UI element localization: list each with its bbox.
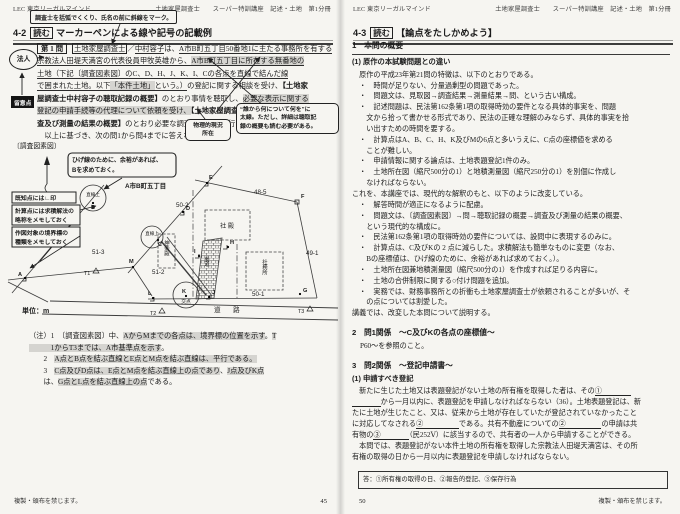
svg-text:L: L (148, 291, 152, 297)
svg-text:K: K (182, 289, 186, 295)
page-number-left: 45 (320, 498, 327, 505)
svg-text:E: E (209, 175, 213, 181)
parcel-51-3: 51-3 (92, 249, 105, 256)
header-brand: LEC 東京リーガルマインド (353, 4, 431, 13)
answer-box: 答：①所有権の取得の日、②報告的登記、③保存行為 (358, 471, 668, 489)
svg-text:I: I (194, 249, 196, 255)
heading-q1: 2 問1関係 ～C及びKの各点の座標値～ (352, 328, 670, 339)
section-number: 4-2 (13, 28, 26, 38)
page-right: LEC 東京リーガルマインド 土地家屋調査士 スーパー特訓講座 記述・土地 第1… (340, 0, 680, 514)
heading-q2: 3 問2関係 ～登記申請書～ (352, 361, 670, 372)
label-kagura-hall: 神楽殿 (163, 239, 170, 258)
approach-path-strip (196, 238, 222, 299)
svg-text:C: C (158, 242, 162, 248)
scanned-textbook-spread: LEC 東京リーガルマインド 土地家屋調査士 スーパー特訓講座 記述・土地 第1… (0, 0, 680, 514)
registration-text: 新たに生じた土地又は表題登記がない土地の所有権を取得した者は、その① から一月以… (352, 386, 670, 462)
memo-straight-line-c: 直線上 (145, 230, 159, 236)
unit-label: 単位：m (22, 306, 49, 315)
svg-text:略称をメモしておく: 略称をメモしておく (15, 216, 68, 224)
read-tag: 読む (370, 27, 393, 39)
section-title-text: 【論点をたしかめよう】 (396, 28, 497, 38)
annotation-callout-surveyor: 調査士を括弧でくくり、氏名の前に斜線をマーク。 (30, 10, 177, 24)
svg-text:F: F (301, 194, 305, 200)
label-approach-path: 参道 (203, 255, 210, 268)
svg-text:A: A (18, 272, 22, 278)
svg-text:既知点には∟印: 既知点には∟印 (15, 194, 56, 202)
svg-text:T3: T3 (298, 309, 304, 315)
svg-text:J: J (212, 290, 215, 296)
header-course: 土地家屋調査士 スーパー特訓講座 記述・土地 第1分冊 (495, 4, 671, 13)
svg-text:ひげ線のために、余裕があれば、: ひげ線のために、余裕があれば、 (72, 156, 162, 164)
label-road: 道 路 (214, 305, 243, 314)
notes-block: （注）1 〔調査図素図〕中、AからMまでの各点は、境界標の位置を示す。T 1から… (29, 331, 333, 389)
copyright-right: 複製・頒布を禁じます。 (599, 496, 666, 505)
header-course: 土地家屋調査士 スーパー特訓講座 記述・土地 第1分冊 (155, 4, 331, 13)
memo-straight-line-b: 直線上 (86, 191, 100, 197)
page-header: LEC 東京リーガルマインド 土地家屋調査士 スーパー特訓講座 記述・土地 第1… (353, 4, 671, 13)
q1-reference: P60～を参照のこと。 (360, 341, 670, 352)
svg-text:T1: T1 (84, 271, 90, 277)
heading-original-diff: (1) 原作の本試験問題との違い (352, 57, 670, 68)
margin-note-legal-person: 法人 (9, 49, 38, 70)
memo-intersection-k: 交点 (181, 298, 191, 305)
parcel-51-2: 51-2 (152, 269, 165, 276)
svg-text:T2: T2 (150, 311, 156, 317)
overview-text: 原作の平成23年第21問の特徴は、以下のとおりである。 ・ 時間が足りない、分量… (352, 70, 670, 319)
page-left: LEC 東京リーガルマインド 土地家屋調査士 スーパー特訓講座 記述・土地 第1… (0, 0, 340, 514)
copyright-left: 複製・頒布を禁じます。 (14, 496, 81, 505)
svg-text:D: D (186, 206, 190, 212)
svg-text:作図対象の境界標の: 作図対象の境界標の (15, 229, 68, 237)
svg-text:G: G (303, 288, 307, 294)
annotation-callout-physical-location: 物理的現況 所在 (185, 119, 231, 141)
parcel-49-1: 49-1 (306, 250, 319, 257)
section-number: 4-3 (353, 28, 366, 38)
right-page-body: 1 本問の概要 (1) 原作の本試験問題との違い 原作の平成23年第21問の特徴… (352, 41, 670, 489)
margin-note-attention: 留意点 (11, 96, 34, 108)
annotation-callout-bold-line: “誰から何について何を”に 太線。ただし、詳細は聴取記 録の概要も読む必要がある… (236, 103, 339, 134)
heading-overview: 1 本問の概要 (352, 41, 670, 55)
survey-sketch-diagram: ひげ線のために、余裕があれば、 Bを求めておく。 既知点には∟印 計算点には求積… (0, 148, 340, 330)
svg-text:B: B (91, 205, 95, 211)
parcel-50-1: 50-1 (252, 291, 265, 298)
svg-text:H: H (230, 240, 234, 246)
sketch-tip-boxes: 既知点には∟印 計算点には求積解法の 略称をメモしておく 作図対象の境界標の 種… (12, 192, 96, 268)
svg-text:計算点には求積解法の: 計算点には求積解法の (15, 207, 74, 215)
svg-text:種類をメモしておく: 種類をメモしておく (15, 238, 68, 246)
label-shrine-main-hall: 社 殿 (220, 222, 234, 230)
heading-registration: (1) 申請すべき登記 (352, 374, 670, 385)
page-number-right: 50 (359, 498, 366, 505)
read-tag: 読む (30, 27, 53, 39)
section-title-text: マーカーペンによる線や記号の記載例 (56, 28, 212, 38)
section-title-left: 4-2読むマーカーペンによる線や記号の記載例 (13, 25, 333, 45)
area-label: A市B町五丁目 (125, 181, 166, 190)
svg-text:Bを求めておく。: Bを求めておく。 (72, 166, 118, 174)
label-shrine-office: 社務所 (261, 258, 268, 277)
svg-text:M: M (129, 259, 134, 265)
parcel-48-5: 48-5 (254, 189, 267, 196)
